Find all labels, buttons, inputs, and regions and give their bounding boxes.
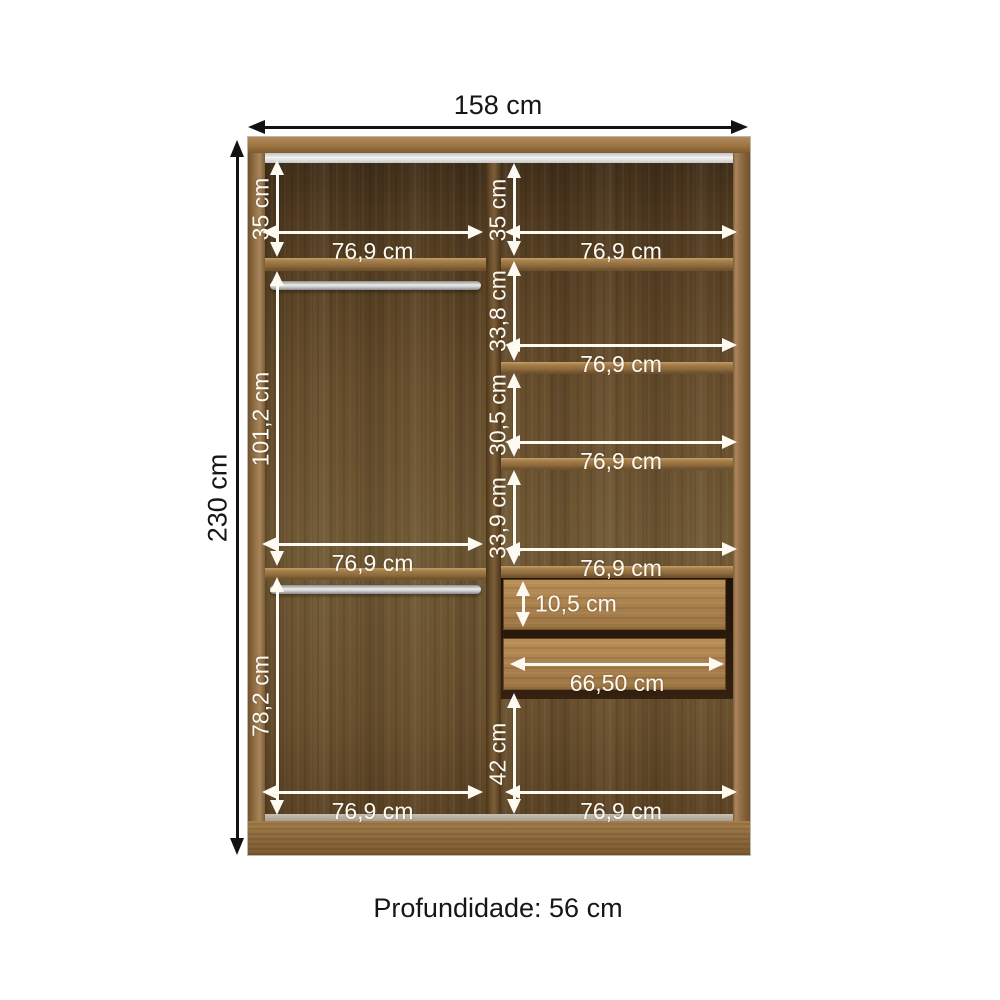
dim-label: 76,9 cm [505, 448, 737, 475]
dim-line [522, 593, 525, 615]
dim-line [517, 548, 725, 551]
diagram-canvas: 158 cm 230 cm 35 cm 76,9 cm 101,2 cm 76,… [0, 0, 1000, 1000]
dim-label: 101,2 cm [248, 371, 275, 466]
dim-line [276, 283, 279, 554]
dim-drawer-height: 10,5 cm [522, 581, 525, 627]
dim-label: 76,9 cm [505, 798, 737, 825]
dim-label: 76,9 cm [262, 550, 483, 577]
dim-line [274, 791, 471, 794]
dim-right-width-2: 76,9 cm [505, 441, 737, 444]
dim-left-mid-width: 76,9 cm [262, 543, 483, 546]
dim-label: 76,9 cm [505, 555, 737, 582]
dim-left-upper-height: 101,2 cm [276, 271, 279, 566]
dim-label: 10,5 cm [535, 591, 617, 618]
top-panel [248, 137, 750, 153]
dim-label: 230 cm [203, 453, 234, 542]
dim-line [236, 152, 239, 843]
dim-line [274, 231, 471, 234]
dim-right-bottom-width: 76,9 cm [505, 791, 737, 794]
dim-label: 78,2 cm [248, 655, 275, 737]
dim-total-height: 230 cm [236, 140, 239, 855]
dim-line [276, 589, 279, 803]
dim-line [517, 791, 725, 794]
dim-line [517, 441, 725, 444]
dim-line [260, 126, 736, 129]
dim-right-top-width: 76,9 cm [505, 231, 737, 234]
dim-label: 76,9 cm [505, 238, 737, 265]
dim-left-bottom-width: 76,9 cm [262, 791, 483, 794]
hanging-rod-lower [270, 585, 481, 594]
dim-line [522, 663, 712, 666]
dim-right-width-3: 76,9 cm [505, 548, 737, 551]
dim-right-width-1: 76,9 cm [505, 344, 737, 347]
dim-drawer-width: 66,50 cm [510, 663, 724, 666]
dim-left-lower-height: 78,2 cm [276, 577, 279, 815]
dim-left-top-width: 76,9 cm [262, 231, 483, 234]
depth-label: Profundidade: 56 cm [248, 893, 748, 924]
dim-line [517, 344, 725, 347]
dim-line [274, 543, 471, 546]
dim-label: 76,9 cm [262, 798, 483, 825]
dim-total-width: 158 cm [248, 126, 748, 129]
dim-label: 66,50 cm [510, 670, 724, 697]
hanging-rod-upper [270, 281, 481, 290]
base-panel [248, 821, 750, 855]
dim-label: 42 cm [485, 722, 512, 785]
dim-line [517, 231, 725, 234]
dim-label: 76,9 cm [505, 351, 737, 378]
dim-label: 76,9 cm [262, 238, 483, 265]
dim-label: 158 cm [248, 90, 748, 121]
